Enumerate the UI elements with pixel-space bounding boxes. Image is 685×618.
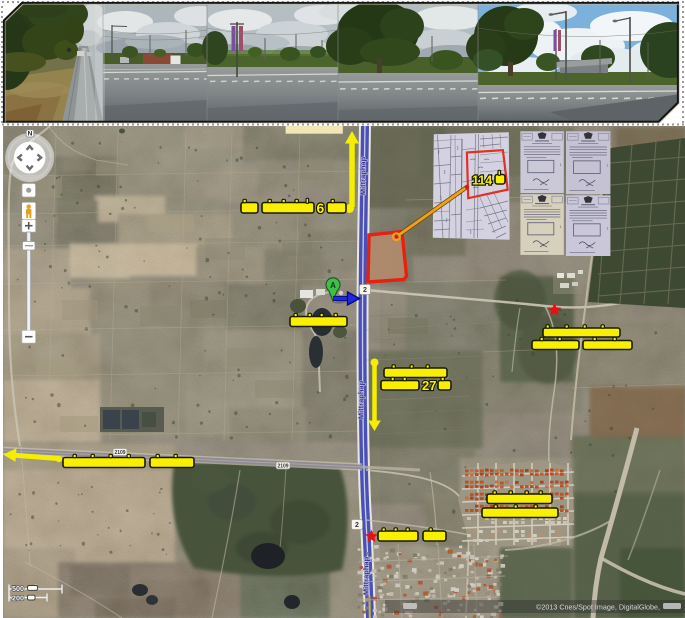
svg-text:500: 500 [12,584,24,593]
svg-text:N: N [28,131,33,138]
svg-text:2109: 2109 [114,450,125,456]
svg-text:1: 1 [606,226,608,230]
svg-text:114: 114 [472,174,492,188]
svg-text:200: 200 [12,594,24,603]
svg-text:6: 6 [317,200,325,216]
svg-text:1: 1 [560,225,562,229]
svg-text:2: 2 [363,287,367,294]
svg-text:Mittraphap: Mittraphap [359,156,368,195]
svg-text:Mittraphap: Mittraphap [362,556,371,595]
svg-text:©2013 Cnes/Spot Image, Digital: ©2013 Cnes/Spot Image, DigitalGlobe, [536,603,660,612]
svg-text:2: 2 [355,522,359,529]
svg-text:Mittraphap: Mittraphap [357,380,366,419]
svg-text:A: A [330,281,336,290]
svg-text:1: 1 [560,163,562,167]
svg-text:27: 27 [422,378,436,393]
svg-text:1: 1 [606,164,608,168]
svg-text:2109: 2109 [277,463,288,469]
